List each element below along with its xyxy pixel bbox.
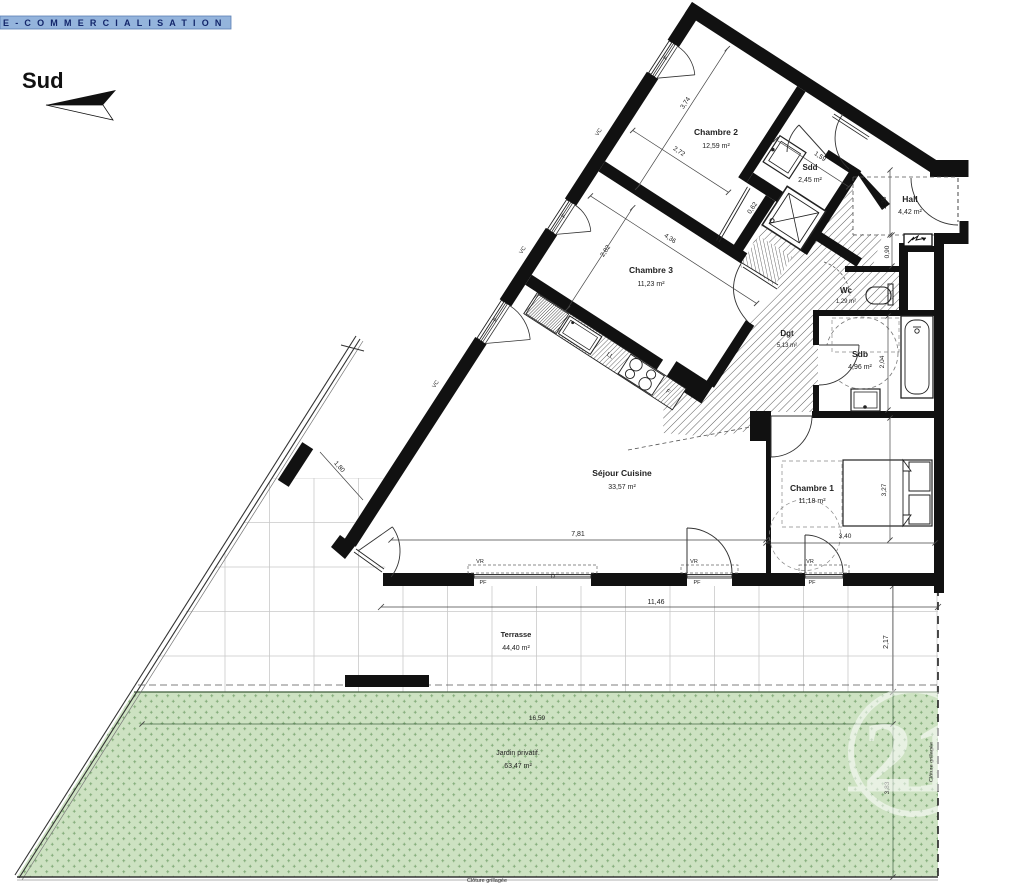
svg-text:VR: VR <box>806 559 814 565</box>
svg-text:0,90: 0,90 <box>884 245 891 258</box>
svg-text:11,46: 11,46 <box>648 599 665 606</box>
svg-text:3,40: 3,40 <box>839 533 852 540</box>
svg-text:1,35: 1,35 <box>881 196 888 209</box>
svg-text:E-COMMERCIALISATION: E-COMMERCIALISATION <box>3 18 228 28</box>
svg-text:21: 21 <box>863 701 963 812</box>
svg-text:Dgt: Dgt <box>780 329 794 338</box>
svg-text:Wc: Wc <box>840 286 853 295</box>
svg-text:Hall: Hall <box>902 194 918 204</box>
svg-text:VR: VR <box>690 559 698 565</box>
svg-text:Sdb: Sdb <box>852 349 868 359</box>
svg-text:2,04: 2,04 <box>879 355 886 368</box>
svg-text:PF: PF <box>808 580 816 586</box>
svg-text:Séjour Cuisine: Séjour Cuisine <box>592 468 652 478</box>
svg-text:PF: PF <box>479 580 487 586</box>
svg-text:Sud: Sud <box>22 68 64 93</box>
svg-text:2,45 m²: 2,45 m² <box>798 177 822 184</box>
svg-text:12,59 m²: 12,59 m² <box>702 143 730 150</box>
svg-text:Clôture grillagée: Clôture grillagée <box>467 878 507 883</box>
svg-text:VR: VR <box>476 559 484 565</box>
svg-text:3,27: 3,27 <box>881 483 888 496</box>
svg-text:44,40 m²: 44,40 m² <box>502 645 530 652</box>
svg-text:2,17: 2,17 <box>883 635 890 649</box>
svg-text:63,47 m²: 63,47 m² <box>504 763 532 770</box>
svg-text:11,23 m²: 11,23 m² <box>637 281 665 288</box>
svg-text:4,96 m²: 4,96 m² <box>848 364 872 371</box>
svg-text:11,18 m²: 11,18 m² <box>798 498 826 505</box>
svg-text:D: D <box>551 574 555 580</box>
svg-text:Chambre 3: Chambre 3 <box>629 265 673 275</box>
svg-text:5,13 m²: 5,13 m² <box>777 343 797 349</box>
svg-text:16,59: 16,59 <box>529 715 546 722</box>
svg-text:33,57 m²: 33,57 m² <box>608 484 636 491</box>
svg-text:Sdd: Sdd <box>802 163 817 172</box>
svg-text:7,81: 7,81 <box>571 531 585 538</box>
svg-text:Terrasse: Terrasse <box>501 630 532 639</box>
svg-text:Chambre 2: Chambre 2 <box>694 127 738 137</box>
svg-text:Jardin privatif.: Jardin privatif. <box>496 750 540 757</box>
svg-text:Chambre 1: Chambre 1 <box>790 483 834 493</box>
svg-text:1,29 m²: 1,29 m² <box>836 299 856 305</box>
svg-text:PF: PF <box>693 580 701 586</box>
svg-text:4,42 m²: 4,42 m² <box>898 209 922 216</box>
